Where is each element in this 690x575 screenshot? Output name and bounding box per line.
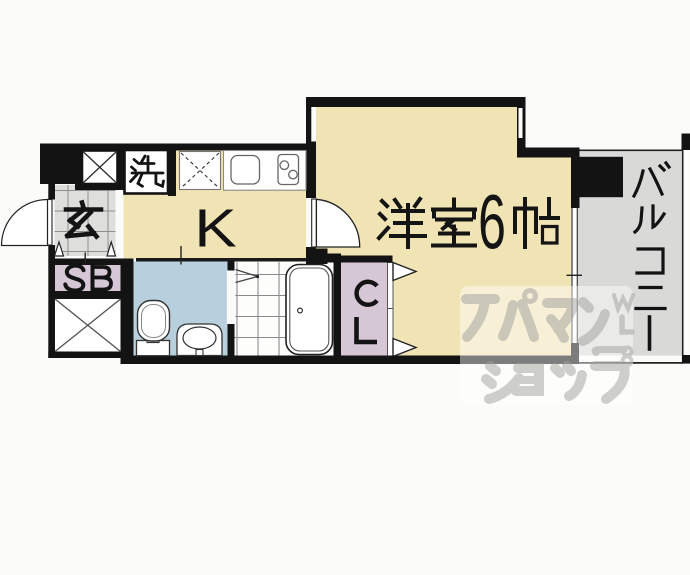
- svg-text:6: 6: [478, 178, 506, 265]
- svg-text:K: K: [194, 198, 236, 258]
